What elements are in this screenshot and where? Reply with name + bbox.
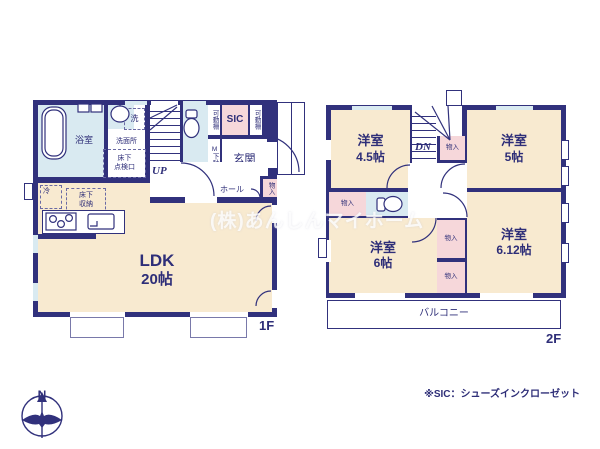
ldk-name: LDK xyxy=(117,250,197,271)
window-top-toilet xyxy=(183,101,206,105)
watermark: (株)あんしんマイホーム xyxy=(210,206,424,233)
ldk-label: LDK 20帖 xyxy=(117,250,197,290)
closet-2f-top-label: 物入 xyxy=(446,144,459,152)
room-5-size: 5帖 xyxy=(505,150,524,165)
sic-label: SIC xyxy=(227,114,244,127)
underfloor-hatch-box: 床下 点検口 xyxy=(103,149,146,178)
ldk-size: 20帖 xyxy=(117,271,197,290)
stairs-landing-1f: UP xyxy=(150,162,180,197)
window-2f-top-2 xyxy=(496,106,533,110)
shelf-right-label: 可動棚 xyxy=(252,110,260,130)
closet-1f: 物入 xyxy=(260,176,277,197)
underfloor-hatch-label: 床下 点検口 xyxy=(114,155,135,173)
sic-footnote: ※SIC：シューズインクローゼット xyxy=(424,389,580,402)
window-box-right-4 xyxy=(561,243,569,263)
window-box-left-2f xyxy=(318,238,327,258)
stairs-1f xyxy=(150,105,180,162)
bath-label: 浴室 xyxy=(75,135,93,146)
window-2f-top-1 xyxy=(352,106,392,110)
hall: ホール xyxy=(180,162,268,197)
terrace-box-1 xyxy=(70,317,124,338)
hall-label: ホール xyxy=(212,185,252,195)
room-yoshitsu-5: 洋室 5帖 xyxy=(467,110,561,188)
window-top-stairs xyxy=(151,101,178,105)
shelf-right: 可動棚 xyxy=(250,105,262,135)
window-left-1 xyxy=(33,235,38,253)
window-2f-bottom-2 xyxy=(480,293,533,298)
stairs-up-label: UP xyxy=(152,165,167,179)
porch-step-line xyxy=(291,103,292,174)
window-right-2 xyxy=(272,290,277,308)
compass-arrow xyxy=(37,392,47,402)
floor1-label: 1F xyxy=(259,318,274,334)
washroom-label: 洗面所 xyxy=(106,138,147,147)
balcony: バルコニー xyxy=(327,300,561,329)
window-2f-bottom-1 xyxy=(355,293,405,298)
room-612-name: 洋室 xyxy=(501,227,527,243)
terrace-box-2 xyxy=(190,317,247,338)
room-toilet-1f xyxy=(183,105,208,162)
closet-2f-top: 物入 xyxy=(437,136,465,163)
kitchen-counter xyxy=(42,210,125,234)
closet-2f-mid1-label: 物入 xyxy=(445,235,458,243)
closet-1f-label: 物入 xyxy=(266,182,274,195)
window-box-right-1 xyxy=(561,140,569,160)
window-box-left-1f xyxy=(24,183,33,200)
compass-rose: N xyxy=(22,388,62,438)
washing-machine-box: 洗 xyxy=(124,108,145,130)
floor2-plan: 洋室 4.5帖 DN 物入 洋室 5帖 物入 洋室 6帖 xyxy=(326,105,566,298)
room-6-size: 6帖 xyxy=(374,256,393,271)
underfloor-storage-label: 床下 収納 xyxy=(79,192,93,210)
front-door-opening xyxy=(267,142,277,168)
room-5-name: 洋室 xyxy=(501,133,527,149)
closet-2f-mid2-label: 物入 xyxy=(445,273,458,281)
window-top-washroom xyxy=(125,101,147,105)
room-yoshitsu-45: 洋室 4.5帖 xyxy=(331,110,410,188)
closet-2f-mid2: 物入 xyxy=(437,262,465,293)
washing-machine-label: 洗 xyxy=(131,114,139,124)
window-left-2 xyxy=(33,283,38,301)
room-yoshitsu-612: 洋室 6.12帖 xyxy=(467,192,561,293)
stairs-2f-treads xyxy=(412,110,436,163)
compass-wings xyxy=(22,411,62,428)
compass-north-label: N xyxy=(38,388,47,402)
room-45-name: 洋室 xyxy=(357,133,383,149)
shelf-left-label: 可動棚 xyxy=(210,110,218,130)
window-box-right-2 xyxy=(561,166,569,186)
room-sic: SIC xyxy=(222,105,248,135)
floor2-label: 2F xyxy=(546,331,561,347)
balcony-label: バルコニー xyxy=(419,308,469,321)
window-box-stairs-2f xyxy=(446,90,462,106)
floor-plan-canvas: 浴室 洗 洗面所 床下 点検口 UP 可動棚 SIC 可動棚 M下駄箱 xyxy=(0,0,600,449)
room-612-size: 6.12帖 xyxy=(496,243,531,258)
fridge-box: 冷 xyxy=(40,185,62,209)
window-box-right-3 xyxy=(561,203,569,223)
closet-2f-mid1: 物入 xyxy=(437,220,465,258)
window-2f-left-1 xyxy=(326,140,331,160)
stairs-dn-label: DN xyxy=(415,141,431,155)
kitchen-wall-stub xyxy=(36,234,96,239)
fridge-label: 冷 xyxy=(43,188,50,197)
room-bath: 浴室 xyxy=(38,105,104,177)
room-45-size: 4.5帖 xyxy=(356,150,385,165)
shelf-left: 可動棚 xyxy=(208,105,220,135)
room-6-name: 洋室 xyxy=(370,240,396,256)
